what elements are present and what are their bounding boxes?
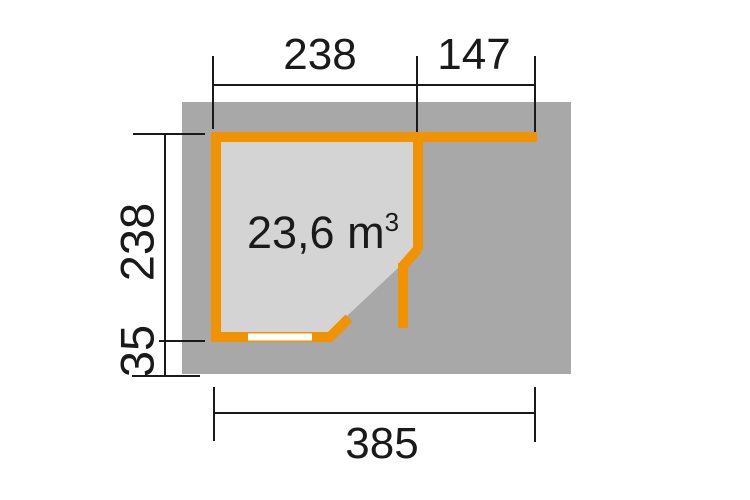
- volume-label: 23,6 m3: [247, 207, 399, 258]
- floor-plan-page: 238 147 238 35 385 23,6 m3: [0, 0, 750, 500]
- dim-label-top-main: 238: [283, 30, 356, 79]
- wall-top: [211, 132, 537, 142]
- dim-label-top-side: 147: [437, 30, 510, 79]
- dim-label-left-overhang: 35: [111, 325, 164, 377]
- floor-plan-drawing: 238 147 238 35 385 23,6 m3: [0, 0, 750, 500]
- dim-label-bottom-total: 385: [345, 419, 418, 468]
- dim-label-left-depth: 238: [111, 203, 164, 281]
- volume-exponent: 3: [385, 207, 399, 237]
- door-leaf-open: [398, 263, 408, 328]
- wall-right: [413, 132, 423, 250]
- wall-left: [211, 132, 221, 342]
- volume-value: 23,6 m: [247, 207, 385, 258]
- window-opening: [248, 334, 312, 341]
